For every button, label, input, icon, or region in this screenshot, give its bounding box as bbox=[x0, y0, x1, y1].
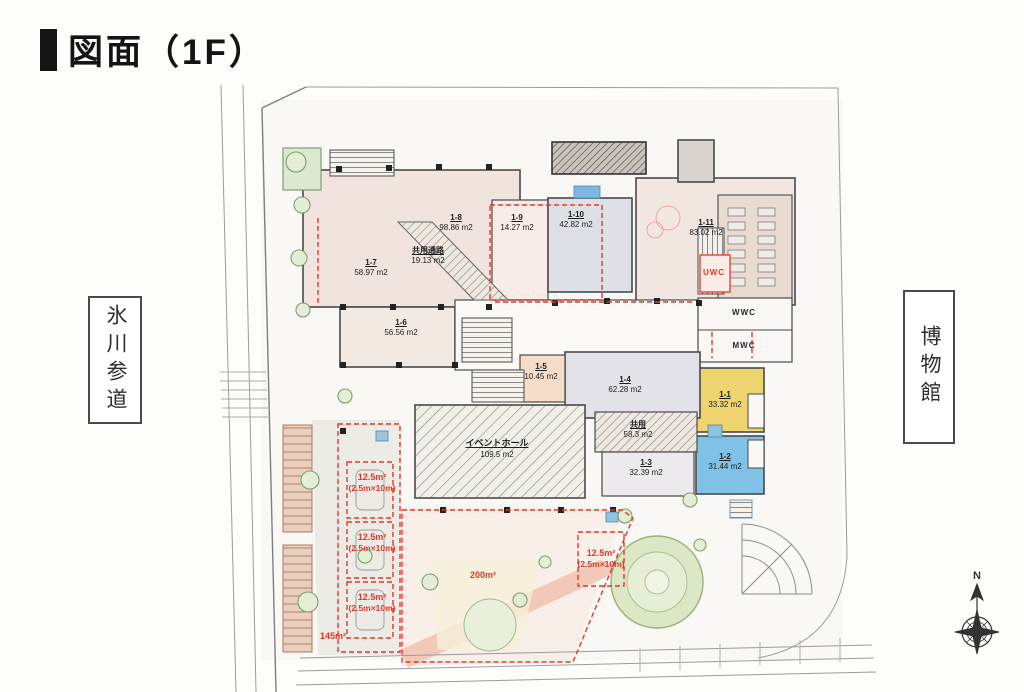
room-label-1-8: 1-8 98.86 m2 bbox=[439, 213, 472, 234]
compass-north-label: N bbox=[973, 570, 981, 582]
site-label-text: 博物館 bbox=[914, 325, 944, 409]
room-label-1-9: 1-9 14.27 m2 bbox=[500, 213, 533, 234]
room-label-1-3: 1-3 32.39 m2 bbox=[629, 458, 662, 479]
compass-rose bbox=[955, 584, 999, 654]
label-wwc: WWC bbox=[732, 308, 756, 317]
space-annotation-4: 12.5m² (2.5m×10m) bbox=[577, 548, 624, 570]
label-uwc: UWC bbox=[703, 268, 725, 277]
space-annotation-3: 12.5m² (2.5m×10m) bbox=[348, 592, 395, 614]
title-accent-bar bbox=[40, 29, 57, 71]
room-label-event-hall: イベントホール 109.5 m2 bbox=[465, 438, 528, 460]
room-label-1-7: 1-7 58.97 m2 bbox=[354, 258, 387, 279]
room-label-1-10: 1-10 42.82 m2 bbox=[559, 210, 592, 231]
floor-plan-page: 図面（1F） 氷川参道 博物館 1-8 98.86 m2 1-9 14.27 m… bbox=[0, 0, 1024, 692]
room-label-1-1: 1-1 33.32 m2 bbox=[708, 390, 741, 411]
page-title-block: 図面（1F） bbox=[40, 24, 267, 75]
street-label-hikawa-sando: 氷川参道 bbox=[88, 296, 142, 424]
area-annotation-200: 200m² bbox=[470, 570, 496, 581]
page-title: 図面（1F） bbox=[68, 24, 267, 75]
room-label-1-11: 1-11 83.02 m2 bbox=[689, 218, 722, 239]
floor-plan-drawing bbox=[0, 0, 1024, 692]
label-mwc: MWC bbox=[733, 341, 756, 350]
room-label-shared-corridor: 共用通路 19.13 m2 bbox=[411, 246, 444, 267]
street-label-text: 氷川参道 bbox=[100, 304, 130, 416]
room-label-1-2: 1-2 31.44 m2 bbox=[708, 452, 741, 473]
room-label-1-4: 1-4 62.28 m2 bbox=[608, 375, 641, 396]
room-label-1-5: 1-5 10.45 m2 bbox=[524, 362, 557, 383]
room-label-shared: 共用 58.3 m2 bbox=[624, 420, 653, 441]
space-annotation-1: 12.5m² (2.5m×10m) bbox=[348, 472, 395, 494]
room-label-1-6: 1-6 56.56 m2 bbox=[384, 318, 417, 339]
area-annotation-145: 145m² bbox=[320, 631, 346, 642]
site-label-museum: 博物館 bbox=[903, 290, 955, 444]
space-annotation-2: 12.5m² (2.5m×10m) bbox=[348, 532, 395, 554]
